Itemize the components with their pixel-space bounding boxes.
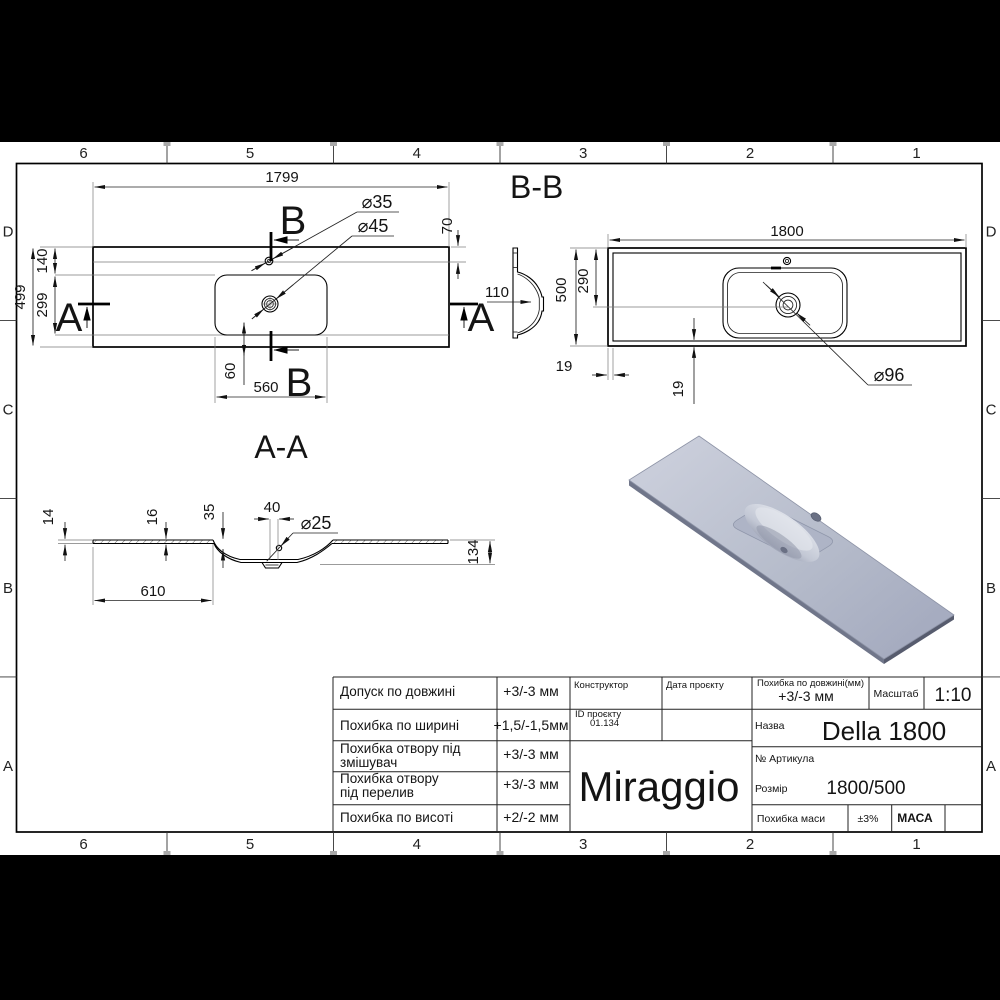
section-letter-b-bottom: B: [286, 361, 313, 405]
dim-d96: ⌀96: [874, 365, 905, 385]
dim-1799: 1799: [265, 169, 298, 186]
col-label: 5: [246, 836, 254, 853]
dim-500: 500: [553, 277, 570, 302]
constructor-label: Конструктор: [574, 680, 628, 691]
dim-70: 70: [439, 218, 456, 235]
dim-610: 610: [140, 583, 165, 600]
dim-60: 60: [222, 363, 239, 380]
row-label: B: [986, 580, 996, 597]
size-value: 1800/500: [826, 778, 905, 799]
dim-110: 110: [485, 284, 509, 301]
section-letter-b-top: B: [280, 199, 307, 243]
row-label: D: [986, 223, 997, 240]
date-label: Дата проєкту: [666, 680, 724, 691]
sheet-frame: 6 5 4 3 2 1 6 5 4 3 2 1 D C B A D C B A: [0, 142, 1000, 855]
dim-d45: ⌀45: [358, 216, 389, 236]
dim-d25: ⌀25: [301, 513, 332, 533]
tolerance-label: Похибка по висоті: [340, 810, 453, 825]
col-label: 3: [579, 145, 587, 162]
dim-290: 290: [575, 268, 592, 293]
scale-label: Масштаб: [874, 688, 919, 700]
row-label: C: [3, 402, 14, 419]
tolerance-label: під перелив: [340, 785, 414, 800]
col-label: 5: [246, 145, 254, 162]
dim-d35: ⌀35: [362, 192, 393, 212]
col-label: 2: [746, 145, 754, 162]
dim-134: 134: [465, 539, 482, 564]
mass-label: МАСА: [897, 811, 933, 825]
section-letter-a-left: A: [56, 296, 83, 340]
row-label: D: [3, 223, 14, 240]
tolerance-label: Похибка отвору: [340, 771, 439, 786]
col-label: 4: [413, 145, 421, 162]
brand-logo: Miraggio: [578, 763, 739, 810]
tolerance-label: змішувач: [340, 755, 397, 770]
tolerance-value: +3/-3 мм: [503, 683, 558, 699]
tolerance-value: +2/-2 мм: [503, 809, 558, 825]
col-label: 6: [79, 836, 87, 853]
drawing-sheet-page: 6 5 4 3 2 1 6 5 4 3 2 1 D C B A D C B A: [0, 0, 1000, 1000]
col-label: 2: [746, 836, 754, 853]
dim-40: 40: [264, 499, 281, 516]
dim-16: 16: [144, 509, 161, 526]
section-bb-title: B-B: [510, 169, 563, 205]
section-letter-a-right: A: [468, 296, 495, 340]
size-label: Розмір: [755, 783, 788, 795]
dim-19-left: 19: [556, 358, 573, 375]
tolerance-value: +3/-3 мм: [503, 746, 558, 762]
row-label: A: [986, 758, 996, 775]
name-label: Назва: [755, 720, 785, 732]
col-label: 3: [579, 836, 587, 853]
dim-140: 140: [34, 248, 51, 273]
paper: [0, 142, 1000, 855]
project-id-value: 01.134: [590, 718, 619, 729]
tolerance-value: +1,5/-1,5мм: [494, 717, 569, 733]
dim-299: 299: [34, 292, 51, 317]
col-label: 1: [912, 836, 920, 853]
article-label: № Артикула: [755, 753, 814, 765]
tolerance-label: Похибка по ширині: [340, 718, 459, 733]
dim-14: 14: [40, 509, 57, 526]
tolerance-value: +3/-3 мм: [503, 776, 558, 792]
dim-560: 560: [253, 379, 278, 396]
scale-value: 1:10: [935, 685, 972, 706]
row-label: C: [986, 402, 997, 419]
dim-499: 499: [12, 284, 29, 309]
name-value: Della 1800: [822, 716, 946, 746]
mass-tolerance-label: Похибка маси: [757, 813, 825, 825]
dim-35: 35: [201, 504, 218, 521]
col-label: 1: [912, 145, 920, 162]
col-label: 4: [413, 836, 421, 853]
col-label: 6: [79, 145, 87, 162]
section-aa-title: A-A: [254, 429, 308, 465]
mass-tolerance-value: ±3%: [858, 813, 879, 825]
row-label: B: [3, 580, 13, 597]
row-label: A: [3, 758, 13, 775]
tolerance-label: Похибка отвору під: [340, 741, 461, 756]
length-tolerance-value: +3/-3 мм: [778, 688, 833, 704]
dim-19-bottom: 19: [670, 381, 687, 398]
dim-1800: 1800: [770, 223, 803, 240]
technical-drawing-canvas: 6 5 4 3 2 1 6 5 4 3 2 1 D C B A D C B A: [0, 0, 1000, 1000]
tolerance-label: Допуск по довжині: [340, 684, 455, 699]
